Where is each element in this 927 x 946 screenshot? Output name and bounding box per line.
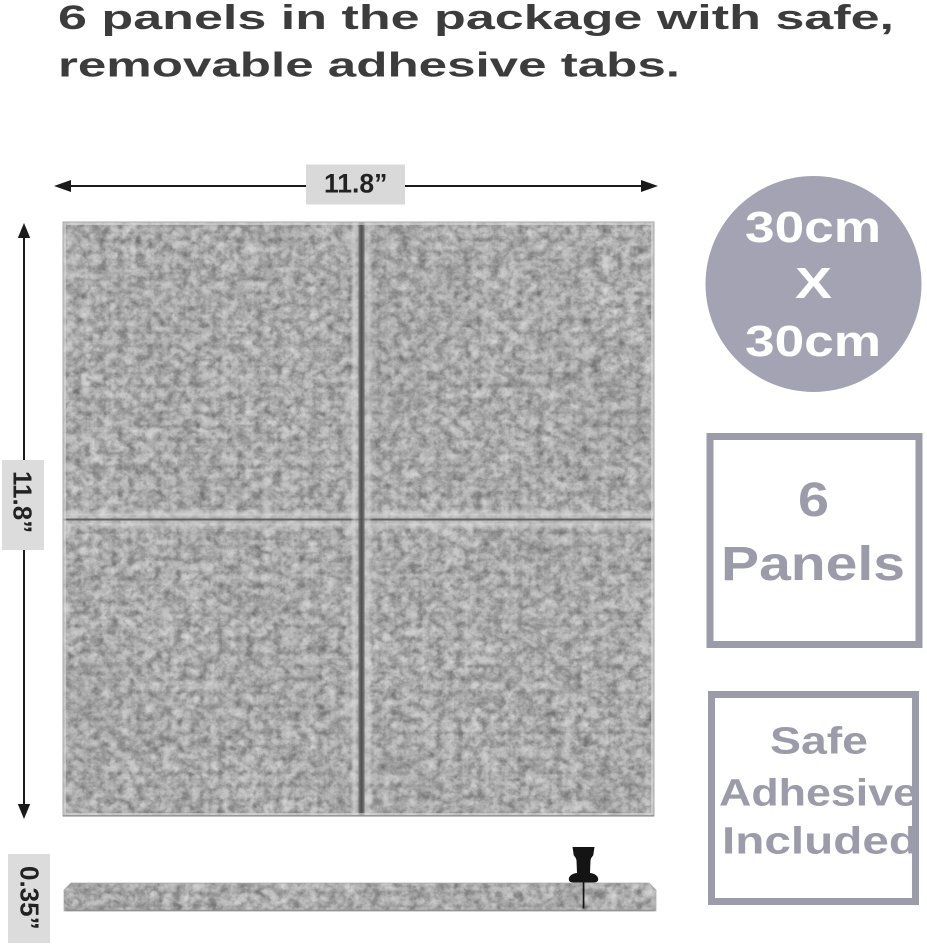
svg-text:Adhesive: Adhesive xyxy=(719,773,918,815)
svg-text:6: 6 xyxy=(798,474,829,527)
svg-text:Safe: Safe xyxy=(770,721,868,763)
svg-text:30cm: 30cm xyxy=(745,317,881,366)
svg-text:30cm: 30cm xyxy=(745,203,881,252)
svg-text:11.8”: 11.8” xyxy=(324,169,387,199)
svg-text:Panels: Panels xyxy=(721,538,905,591)
svg-text:11.8”: 11.8” xyxy=(8,471,38,533)
svg-text:removable adhesive tabs.: removable adhesive tabs. xyxy=(58,47,680,85)
svg-text:6 panels in the package with s: 6 panels in the package with safe, xyxy=(58,0,894,37)
svg-text:0.35”: 0.35” xyxy=(15,866,45,930)
svg-text:Included: Included xyxy=(722,821,918,863)
svg-text:X: X xyxy=(795,259,832,308)
